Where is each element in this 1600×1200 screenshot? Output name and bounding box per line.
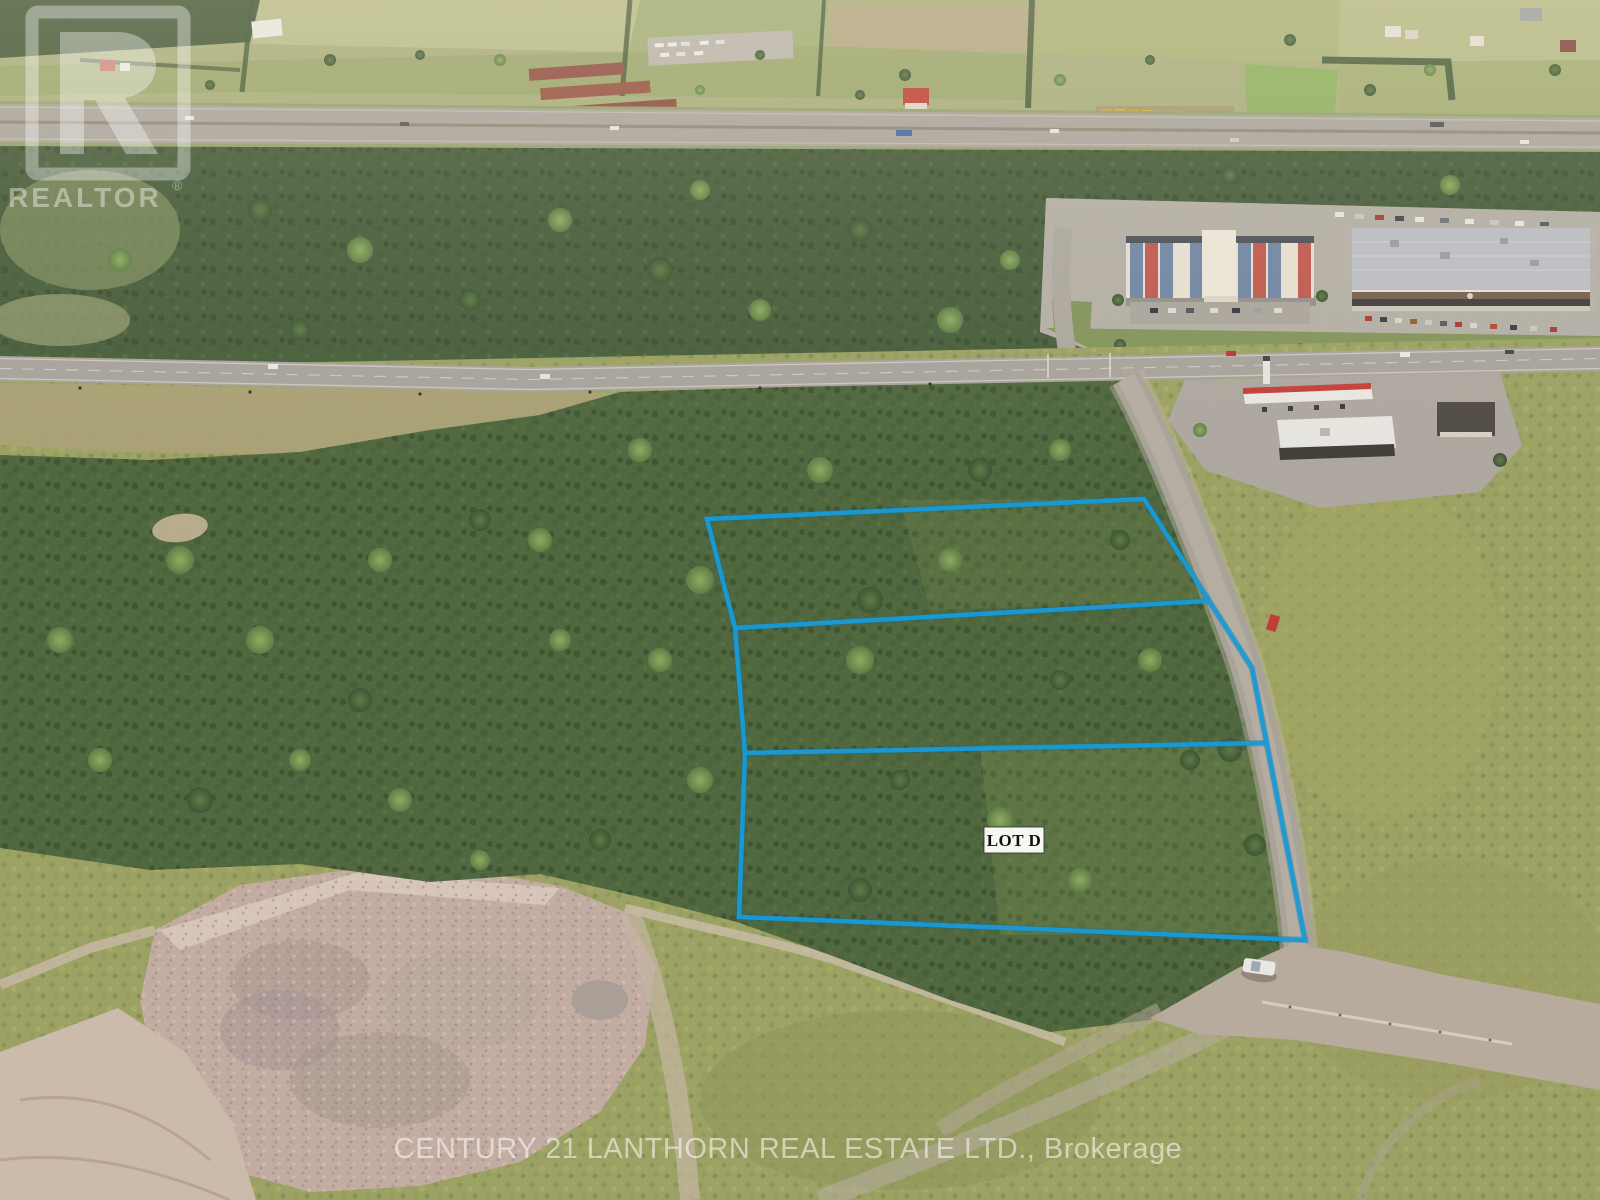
aerial-photo: LOT D REALTOR ® CENTURY 21 LANTHORN REAL…: [0, 0, 1600, 1200]
lot-label: LOT D: [984, 827, 1044, 853]
brokerage-watermark: CENTURY 21 LANTHORN REAL ESTATE LTD., Br…: [394, 1133, 1182, 1166]
atmospheric-haze: [0, 0, 1600, 1200]
registered-mark: ®: [172, 177, 183, 193]
realtor-watermark: REALTOR ®: [8, 12, 184, 213]
lot-label-text: LOT D: [987, 831, 1042, 850]
realtor-logo-text: REALTOR: [8, 182, 162, 213]
aerial-photo-canvas: LOT D REALTOR ®: [0, 0, 1600, 1200]
